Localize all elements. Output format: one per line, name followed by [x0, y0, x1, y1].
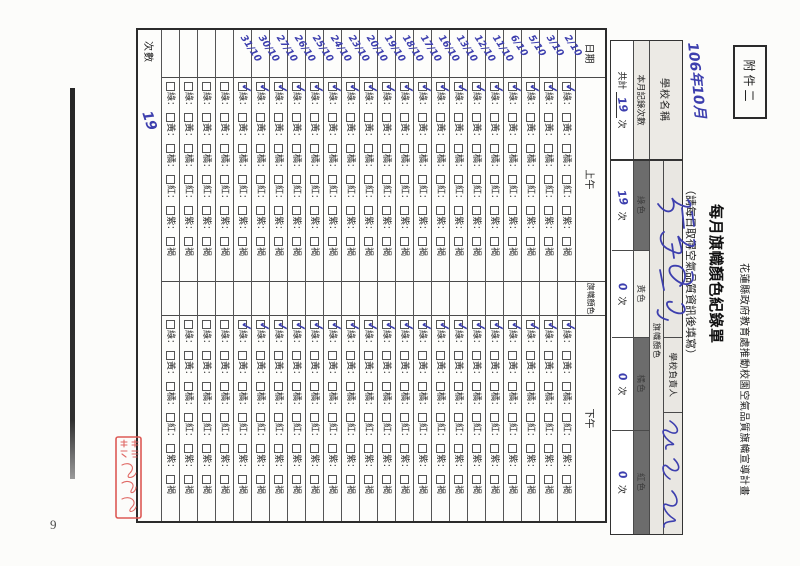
checkbox-option-green[interactable]: 綠： [220, 320, 229, 348]
checkbox[interactable] [292, 351, 301, 360]
checkbox[interactable] [310, 113, 319, 122]
checkbox[interactable] [292, 382, 301, 391]
checkbox[interactable] [256, 113, 265, 122]
checkbox-option-orange[interactable]: 橘： [238, 382, 247, 410]
checkbox[interactable] [472, 413, 481, 422]
checkbox-option-orange[interactable]: 橘： [292, 382, 301, 410]
checkbox-option-yellow[interactable]: 黃： [346, 113, 355, 141]
checkbox[interactable] [166, 175, 175, 184]
checkbox[interactable] [418, 382, 427, 391]
checkbox-option-purple[interactable]: 紫： [454, 206, 463, 234]
checkbox-option-brown[interactable]: 褐 [220, 237, 229, 256]
flag-color-cell[interactable] [216, 282, 233, 316]
checkbox[interactable] [472, 382, 481, 391]
checkbox[interactable] [346, 351, 355, 360]
checkbox[interactable] [328, 113, 337, 122]
checkbox-option-orange[interactable]: 橘： [256, 144, 265, 172]
checkbox-option-yellow[interactable]: 黃： [238, 351, 247, 379]
checkbox-option-brown[interactable]: 褐 [184, 475, 193, 494]
checkbox[interactable] [310, 444, 319, 453]
checkbox[interactable] [490, 444, 499, 453]
checkbox[interactable] [220, 206, 229, 215]
checkbox[interactable]: ✓ [382, 82, 391, 91]
checkbox[interactable] [328, 444, 337, 453]
checkbox-option-red[interactable]: 紅： [238, 413, 247, 441]
checkbox[interactable] [436, 444, 445, 453]
checkbox[interactable] [238, 113, 247, 122]
checkbox-option-orange[interactable]: 橘： [184, 144, 193, 172]
checkbox[interactable] [472, 351, 481, 360]
checkbox[interactable] [454, 413, 463, 422]
checkbox-option-green[interactable]: ✓綠： [238, 82, 247, 110]
checkbox[interactable] [562, 382, 571, 391]
checkbox-option-red[interactable]: 紅： [202, 175, 211, 203]
checkbox[interactable] [274, 475, 283, 484]
checkbox-option-red[interactable]: 紅： [490, 175, 499, 203]
checkbox-option-green[interactable]: ✓綠： [508, 320, 517, 348]
flag-color-cell[interactable] [324, 282, 341, 316]
checkbox[interactable] [436, 413, 445, 422]
checkbox-option-yellow[interactable]: 黃： [490, 351, 499, 379]
checkbox[interactable]: ✓ [508, 320, 517, 329]
checkbox[interactable] [256, 175, 265, 184]
checkbox-option-purple[interactable]: 紫： [400, 444, 409, 472]
checkbox-option-red[interactable]: 紅： [418, 413, 427, 441]
checkbox[interactable]: ✓ [238, 320, 247, 329]
checkbox-option-purple[interactable]: 紫： [310, 444, 319, 472]
checkbox-option-brown[interactable]: 褐 [490, 237, 499, 256]
checkbox[interactable] [184, 382, 193, 391]
checkbox[interactable] [472, 237, 481, 246]
checkbox[interactable] [418, 175, 427, 184]
checkbox[interactable] [382, 144, 391, 153]
checkbox-option-orange[interactable]: 橘： [508, 382, 517, 410]
checkbox[interactable] [382, 351, 391, 360]
checkbox-option-purple[interactable]: 紫： [166, 206, 175, 234]
checkbox[interactable] [490, 382, 499, 391]
checkbox-option-red[interactable]: 紅： [436, 175, 445, 203]
checkbox-option-yellow[interactable]: 黃： [184, 351, 193, 379]
checkbox-option-yellow[interactable]: 黃： [400, 113, 409, 141]
checkbox[interactable] [328, 144, 337, 153]
checkbox[interactable] [274, 144, 283, 153]
flag-color-cell[interactable] [468, 282, 485, 316]
checkbox-option-purple[interactable]: 紫： [166, 444, 175, 472]
checkbox[interactable] [490, 475, 499, 484]
checkbox-option-brown[interactable]: 褐 [490, 475, 499, 494]
checkbox[interactable]: ✓ [454, 82, 463, 91]
checkbox-option-brown[interactable]: 褐 [274, 237, 283, 256]
checkbox[interactable] [490, 413, 499, 422]
checkbox[interactable] [202, 351, 211, 360]
checkbox[interactable] [346, 237, 355, 246]
checkbox-option-purple[interactable]: 紫： [436, 206, 445, 234]
checkbox-option-orange[interactable]: 橘： [418, 382, 427, 410]
checkbox-option-orange[interactable]: 橘： [544, 144, 553, 172]
checkbox[interactable] [220, 320, 229, 329]
checkbox[interactable] [526, 206, 535, 215]
checkbox[interactable] [508, 475, 517, 484]
checkbox[interactable]: ✓ [328, 320, 337, 329]
checkbox-option-purple[interactable]: 紫： [346, 444, 355, 472]
checkbox-option-yellow[interactable]: 黃： [328, 113, 337, 141]
checkbox-option-orange[interactable]: 橘： [346, 144, 355, 172]
checkbox[interactable] [544, 413, 553, 422]
checkbox[interactable] [238, 144, 247, 153]
checkbox-option-brown[interactable]: 褐 [454, 475, 463, 494]
checkbox-option-red[interactable]: 紅： [310, 175, 319, 203]
checkbox[interactable]: ✓ [562, 320, 571, 329]
checkbox-option-red[interactable]: 紅： [544, 413, 553, 441]
checkbox-option-red[interactable]: 紅： [508, 175, 517, 203]
checkbox[interactable] [382, 206, 391, 215]
checkbox[interactable] [436, 237, 445, 246]
checkbox-option-green[interactable]: ✓綠： [526, 82, 535, 110]
checkbox-option-green[interactable]: 綠： [166, 320, 175, 348]
checkbox[interactable] [328, 175, 337, 184]
checkbox-option-green[interactable]: ✓綠： [274, 82, 283, 110]
checkbox-option-red[interactable]: 紅： [238, 175, 247, 203]
checkbox-option-red[interactable]: 紅： [346, 175, 355, 203]
checkbox[interactable] [292, 444, 301, 453]
checkbox[interactable]: ✓ [256, 82, 265, 91]
checkbox-option-green[interactable]: ✓綠： [310, 320, 319, 348]
checkbox[interactable] [202, 475, 211, 484]
checkbox[interactable] [202, 82, 211, 91]
checkbox[interactable] [256, 144, 265, 153]
checkbox[interactable] [418, 144, 427, 153]
checkbox[interactable] [472, 144, 481, 153]
flag-color-cell[interactable] [198, 282, 215, 316]
checkbox[interactable] [346, 444, 355, 453]
checkbox[interactable] [202, 113, 211, 122]
checkbox[interactable] [400, 475, 409, 484]
checkbox[interactable] [184, 237, 193, 246]
checkbox[interactable] [184, 175, 193, 184]
checkbox[interactable] [544, 475, 553, 484]
total-value-field[interactable]: 19 [617, 92, 629, 118]
checkbox-option-green[interactable]: ✓綠： [346, 320, 355, 348]
checkbox-option-purple[interactable]: 紫： [364, 444, 373, 472]
checkbox[interactable] [382, 175, 391, 184]
checkbox[interactable] [346, 475, 355, 484]
checkbox-option-red[interactable]: 紅： [472, 413, 481, 441]
checkbox-option-red[interactable]: 紅： [346, 413, 355, 441]
checkbox[interactable] [562, 237, 571, 246]
checkbox[interactable] [400, 413, 409, 422]
checkbox[interactable] [184, 82, 193, 91]
checkbox[interactable] [400, 351, 409, 360]
checkbox-option-yellow[interactable]: 黃： [220, 113, 229, 141]
flag-color-cell[interactable] [234, 282, 251, 316]
checkbox[interactable] [436, 206, 445, 215]
checkbox[interactable] [526, 144, 535, 153]
checkbox-option-orange[interactable]: 橘： [382, 382, 391, 410]
checkbox-option-yellow[interactable]: 黃： [310, 113, 319, 141]
checkbox[interactable] [292, 206, 301, 215]
checkbox[interactable] [490, 144, 499, 153]
checkbox-option-purple[interactable]: 紫： [184, 206, 193, 234]
checkbox[interactable] [166, 320, 175, 329]
checkbox-option-purple[interactable]: 紫： [490, 444, 499, 472]
checkbox-option-green[interactable]: ✓綠： [382, 320, 391, 348]
checkbox[interactable] [418, 475, 427, 484]
checkbox-option-orange[interactable]: 橘： [472, 144, 481, 172]
checkbox[interactable] [292, 113, 301, 122]
checkbox[interactable] [256, 444, 265, 453]
checkbox-option-red[interactable]: 紅： [220, 413, 229, 441]
checkbox-option-red[interactable]: 紅： [418, 175, 427, 203]
checkbox-option-purple[interactable]: 紫： [508, 206, 517, 234]
checkbox[interactable] [436, 382, 445, 391]
checkbox-option-brown[interactable]: 褐 [220, 475, 229, 494]
checkbox-option-purple[interactable]: 紫： [220, 206, 229, 234]
checkbox-option-red[interactable]: 紅： [328, 175, 337, 203]
checkbox-option-orange[interactable]: 橘： [274, 144, 283, 172]
checkbox[interactable] [418, 237, 427, 246]
checkbox[interactable] [454, 351, 463, 360]
checkbox[interactable] [274, 444, 283, 453]
checkbox-option-brown[interactable]: 褐 [274, 475, 283, 494]
checkbox[interactable] [382, 382, 391, 391]
checkbox[interactable] [508, 113, 517, 122]
checkbox[interactable] [202, 144, 211, 153]
checkbox[interactable] [220, 82, 229, 91]
date-cell[interactable] [216, 30, 233, 78]
checkbox[interactable] [328, 475, 337, 484]
checkbox[interactable]: ✓ [472, 320, 481, 329]
checkbox-option-brown[interactable]: 褐 [292, 237, 301, 256]
checkbox[interactable] [274, 206, 283, 215]
checkbox[interactable] [526, 113, 535, 122]
checkbox[interactable] [238, 237, 247, 246]
checkbox-option-green[interactable]: ✓綠： [274, 320, 283, 348]
checkbox[interactable] [454, 444, 463, 453]
checkbox-option-purple[interactable]: 紫： [382, 444, 391, 472]
checkbox-option-green[interactable]: ✓綠： [490, 82, 499, 110]
checkbox-option-brown[interactable]: 褐 [184, 237, 193, 256]
checkbox-option-green[interactable]: ✓綠： [454, 82, 463, 110]
checkbox-option-purple[interactable]: 紫： [274, 206, 283, 234]
checkbox[interactable] [346, 113, 355, 122]
checkbox[interactable]: ✓ [436, 320, 445, 329]
checkbox[interactable] [418, 206, 427, 215]
checkbox-option-green[interactable]: ✓綠： [400, 320, 409, 348]
checkbox-option-orange[interactable]: 橘： [490, 144, 499, 172]
checkbox-option-yellow[interactable]: 黃： [346, 351, 355, 379]
checkbox-option-yellow[interactable]: 黃： [166, 351, 175, 379]
checkbox[interactable]: ✓ [490, 82, 499, 91]
checkbox-option-orange[interactable]: 橘： [526, 382, 535, 410]
checkbox-option-purple[interactable]: 紫： [418, 444, 427, 472]
checkbox-option-green[interactable]: ✓綠： [292, 82, 301, 110]
checkbox-option-purple[interactable]: 紫： [310, 206, 319, 234]
checkbox[interactable] [400, 175, 409, 184]
checkbox-option-green[interactable]: ✓綠： [400, 82, 409, 110]
flag-color-cell[interactable] [486, 282, 503, 316]
checkbox-option-green[interactable]: ✓綠： [508, 82, 517, 110]
checkbox-option-brown[interactable]: 褐 [544, 237, 553, 256]
checkbox-option-yellow[interactable]: 黃： [472, 351, 481, 379]
checkbox[interactable] [166, 475, 175, 484]
checkbox-option-green[interactable]: ✓綠： [562, 82, 571, 110]
checkbox-option-red[interactable]: 紅： [382, 175, 391, 203]
checkbox[interactable]: ✓ [274, 320, 283, 329]
checkbox-option-yellow[interactable]: 黃： [220, 351, 229, 379]
checkbox-option-orange[interactable]: 橘： [454, 382, 463, 410]
checkbox[interactable] [454, 175, 463, 184]
checkbox-option-purple[interactable]: 紫： [472, 444, 481, 472]
checkbox-option-orange[interactable]: 橘： [490, 382, 499, 410]
checkbox[interactable] [328, 237, 337, 246]
checkbox[interactable] [310, 475, 319, 484]
checkbox-option-green[interactable]: ✓綠： [364, 82, 373, 110]
checkbox[interactable] [490, 113, 499, 122]
checkbox[interactable] [256, 206, 265, 215]
checkbox[interactable]: ✓ [454, 320, 463, 329]
checkbox[interactable] [418, 113, 427, 122]
checkbox[interactable] [562, 351, 571, 360]
checkbox-option-purple[interactable]: 紫： [490, 206, 499, 234]
checkbox[interactable] [310, 237, 319, 246]
checkbox[interactable]: ✓ [310, 320, 319, 329]
checkbox-option-brown[interactable]: 褐 [346, 237, 355, 256]
flag-color-cell[interactable] [522, 282, 539, 316]
checkbox-option-green[interactable]: ✓綠： [472, 320, 481, 348]
checkbox-option-orange[interactable]: 橘： [256, 382, 265, 410]
checkbox-option-purple[interactable]: 紫： [292, 444, 301, 472]
checkbox[interactable] [202, 175, 211, 184]
checkbox-option-brown[interactable]: 褐 [526, 237, 535, 256]
checkbox[interactable] [310, 144, 319, 153]
checkbox-option-purple[interactable]: 紫： [202, 206, 211, 234]
checkbox[interactable] [346, 206, 355, 215]
checkbox-option-brown[interactable]: 褐 [256, 237, 265, 256]
checkbox[interactable] [274, 382, 283, 391]
checkbox-option-brown[interactable]: 褐 [436, 237, 445, 256]
checkbox-option-brown[interactable]: 褐 [202, 237, 211, 256]
checkbox[interactable] [292, 475, 301, 484]
checkbox[interactable] [472, 444, 481, 453]
checkbox[interactable] [238, 206, 247, 215]
checkbox[interactable]: ✓ [562, 82, 571, 91]
checkbox[interactable]: ✓ [400, 320, 409, 329]
checkbox-option-green[interactable]: ✓綠： [562, 320, 571, 348]
checkbox[interactable]: ✓ [526, 320, 535, 329]
checkbox-option-green[interactable]: ✓綠： [436, 320, 445, 348]
checkbox[interactable] [166, 413, 175, 422]
checkbox[interactable] [220, 413, 229, 422]
checkbox-option-purple[interactable]: 紫： [238, 444, 247, 472]
date-cell[interactable] [198, 30, 215, 78]
checkbox[interactable] [238, 444, 247, 453]
checkbox-option-purple[interactable]: 紫： [274, 444, 283, 472]
checkbox-option-orange[interactable]: 橘： [562, 382, 571, 410]
checkbox[interactable] [454, 113, 463, 122]
checkbox[interactable] [328, 206, 337, 215]
checkbox-option-green[interactable]: ✓綠： [526, 320, 535, 348]
checkbox[interactable] [436, 175, 445, 184]
checkbox-option-brown[interactable]: 褐 [508, 475, 517, 494]
checkbox[interactable] [166, 382, 175, 391]
checkbox-option-brown[interactable]: 褐 [436, 475, 445, 494]
checkbox-option-purple[interactable]: 紫： [526, 206, 535, 234]
checkbox-option-orange[interactable]: 橘： [202, 382, 211, 410]
flag-color-cell[interactable] [342, 282, 359, 316]
checkbox-option-green[interactable]: 綠： [184, 320, 193, 348]
checkbox[interactable]: ✓ [382, 320, 391, 329]
checkbox[interactable] [364, 351, 373, 360]
checkbox[interactable] [202, 237, 211, 246]
checkbox[interactable] [274, 351, 283, 360]
checkbox[interactable] [382, 237, 391, 246]
checkbox[interactable] [508, 144, 517, 153]
checkbox-option-yellow[interactable]: 黃： [508, 113, 517, 141]
checkbox[interactable] [184, 206, 193, 215]
checkbox-option-purple[interactable]: 紫： [562, 444, 571, 472]
checkbox[interactable] [472, 206, 481, 215]
checkbox-option-green[interactable]: ✓綠： [346, 82, 355, 110]
checkbox[interactable] [382, 475, 391, 484]
checkbox[interactable] [256, 351, 265, 360]
checkbox-option-brown[interactable]: 褐 [382, 475, 391, 494]
checkbox-option-orange[interactable]: 橘： [328, 144, 337, 172]
checkbox[interactable]: ✓ [310, 82, 319, 91]
checkbox-option-purple[interactable]: 紫： [220, 444, 229, 472]
checkbox[interactable] [292, 237, 301, 246]
checkbox-option-purple[interactable]: 紫： [544, 444, 553, 472]
checkbox-option-brown[interactable]: 褐 [328, 475, 337, 494]
checkbox[interactable] [256, 382, 265, 391]
checkbox[interactable] [508, 206, 517, 215]
checkbox-option-red[interactable]: 紅： [166, 413, 175, 441]
checkbox-option-orange[interactable]: 橘： [274, 382, 283, 410]
checkbox-option-yellow[interactable]: 黃： [292, 113, 301, 141]
checkbox-option-yellow[interactable]: 黃： [382, 113, 391, 141]
checkbox[interactable] [310, 382, 319, 391]
checkbox-option-green[interactable]: 綠： [220, 82, 229, 110]
checkbox-option-green[interactable]: 綠： [166, 82, 175, 110]
checkbox-option-yellow[interactable]: 黃： [382, 351, 391, 379]
checkbox[interactable] [436, 144, 445, 153]
checkbox-option-yellow[interactable]: 黃： [508, 351, 517, 379]
date-cell[interactable] [162, 30, 179, 78]
checkbox[interactable] [544, 175, 553, 184]
checkbox-option-orange[interactable]: 橘： [220, 144, 229, 172]
checkbox[interactable]: ✓ [274, 82, 283, 91]
checkbox-option-yellow[interactable]: 黃： [184, 113, 193, 141]
flag-color-cell[interactable] [432, 282, 449, 316]
checkbox-option-yellow[interactable]: 黃： [436, 113, 445, 141]
checkbox[interactable] [490, 351, 499, 360]
checkbox-option-yellow[interactable]: 黃： [274, 113, 283, 141]
checkbox[interactable] [364, 113, 373, 122]
checkbox[interactable]: ✓ [328, 82, 337, 91]
checkbox[interactable] [400, 237, 409, 246]
checkbox-option-orange[interactable]: 橘： [436, 144, 445, 172]
checkbox[interactable] [400, 144, 409, 153]
checkbox[interactable] [544, 444, 553, 453]
checkbox[interactable] [364, 237, 373, 246]
checkbox[interactable] [220, 175, 229, 184]
checkbox[interactable] [364, 413, 373, 422]
flag-color-cell[interactable] [360, 282, 377, 316]
checkbox[interactable]: ✓ [346, 320, 355, 329]
checkbox-option-purple[interactable]: 紫： [184, 444, 193, 472]
checkbox[interactable] [526, 413, 535, 422]
checkbox[interactable] [562, 413, 571, 422]
checkbox[interactable] [562, 475, 571, 484]
